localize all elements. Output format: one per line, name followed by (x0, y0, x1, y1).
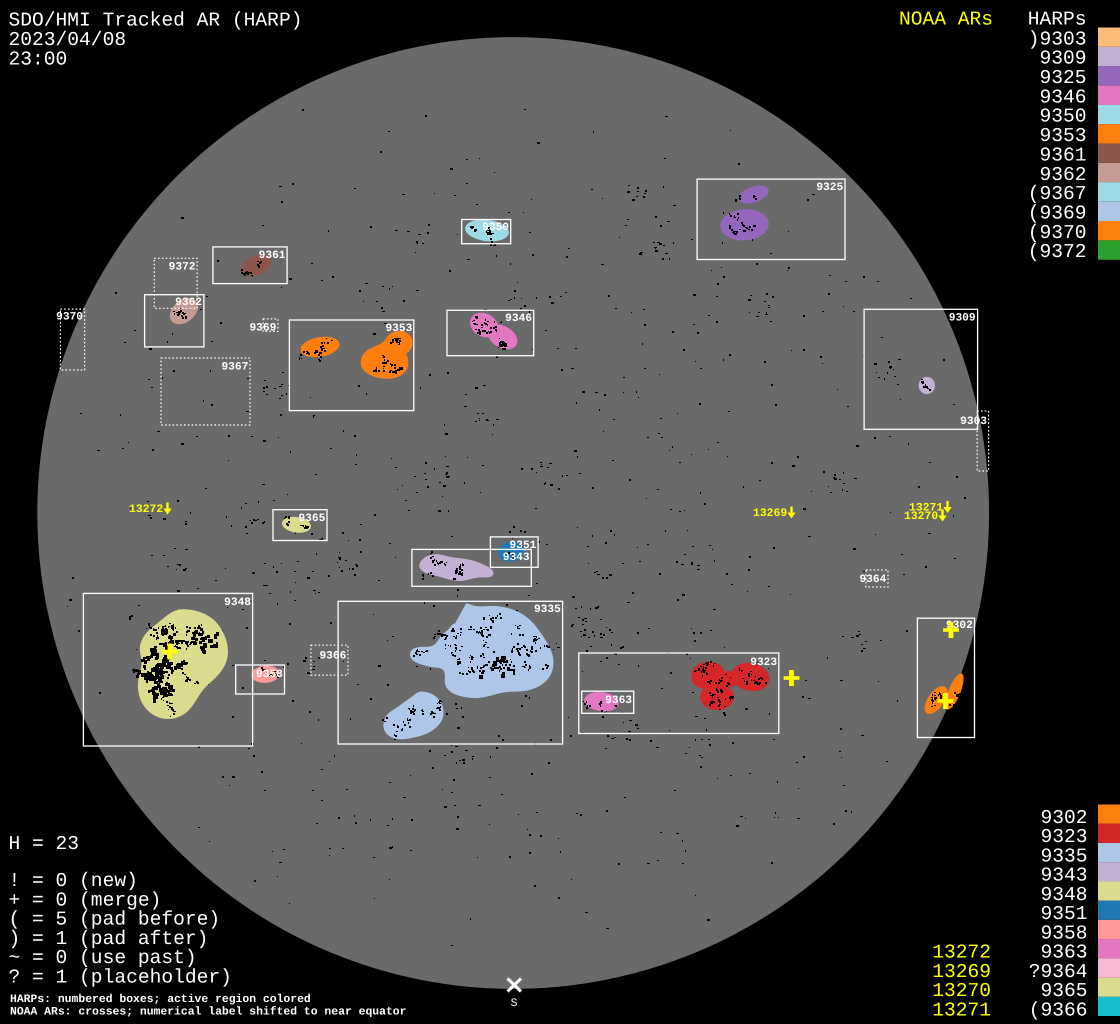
svg-text:9366: 9366 (319, 651, 346, 663)
svg-text:(9372: (9372 (1028, 241, 1087, 263)
svg-text:9325: 9325 (816, 182, 843, 194)
svg-text:H = 23: H = 23 (9, 833, 80, 855)
svg-text:9343: 9343 (503, 552, 530, 564)
svg-text:9363: 9363 (605, 695, 632, 707)
svg-text:9309: 9309 (949, 312, 976, 324)
svg-text:13269: 13269 (753, 508, 787, 520)
svg-text:9358: 9358 (256, 669, 283, 681)
svg-text:9350: 9350 (482, 222, 509, 234)
svg-text:9364: 9364 (859, 574, 886, 586)
svg-text:9362: 9362 (175, 297, 202, 309)
svg-text:9351: 9351 (510, 540, 537, 552)
svg-text:9365: 9365 (298, 513, 325, 525)
svg-text:9348: 9348 (224, 597, 251, 609)
svg-text:9367: 9367 (221, 362, 248, 374)
svg-text:NOAA ARs: crosses; numerical l: NOAA ARs: crosses; numerical label shift… (10, 1006, 407, 1019)
svg-text:? = 1 (placeholder): ? = 1 (placeholder) (9, 967, 232, 989)
svg-text:9346: 9346 (505, 313, 532, 325)
svg-text:13270: 13270 (904, 511, 938, 523)
svg-text:(9366: (9366 (1029, 999, 1088, 1021)
svg-text:NOAA ARs: NOAA ARs (899, 9, 993, 31)
svg-text:9353: 9353 (385, 323, 412, 335)
svg-text:9335: 9335 (534, 604, 561, 616)
svg-text:9370: 9370 (56, 312, 83, 324)
svg-text:9372: 9372 (169, 262, 196, 274)
svg-text:9323: 9323 (750, 657, 777, 669)
svg-text:9369: 9369 (249, 323, 276, 335)
svg-text:S: S (511, 998, 518, 1010)
svg-text:HARPs: HARPs (1028, 9, 1087, 31)
svg-text:23:00: 23:00 (9, 48, 68, 70)
svg-text:9361: 9361 (259, 250, 286, 262)
svg-text:13272: 13272 (129, 504, 163, 516)
svg-text:9303: 9303 (960, 416, 987, 428)
svg-text:HARPs: numbered boxes; active: HARPs: numbered boxes; active region col… (10, 993, 311, 1006)
svg-text:13271: 13271 (932, 999, 991, 1021)
